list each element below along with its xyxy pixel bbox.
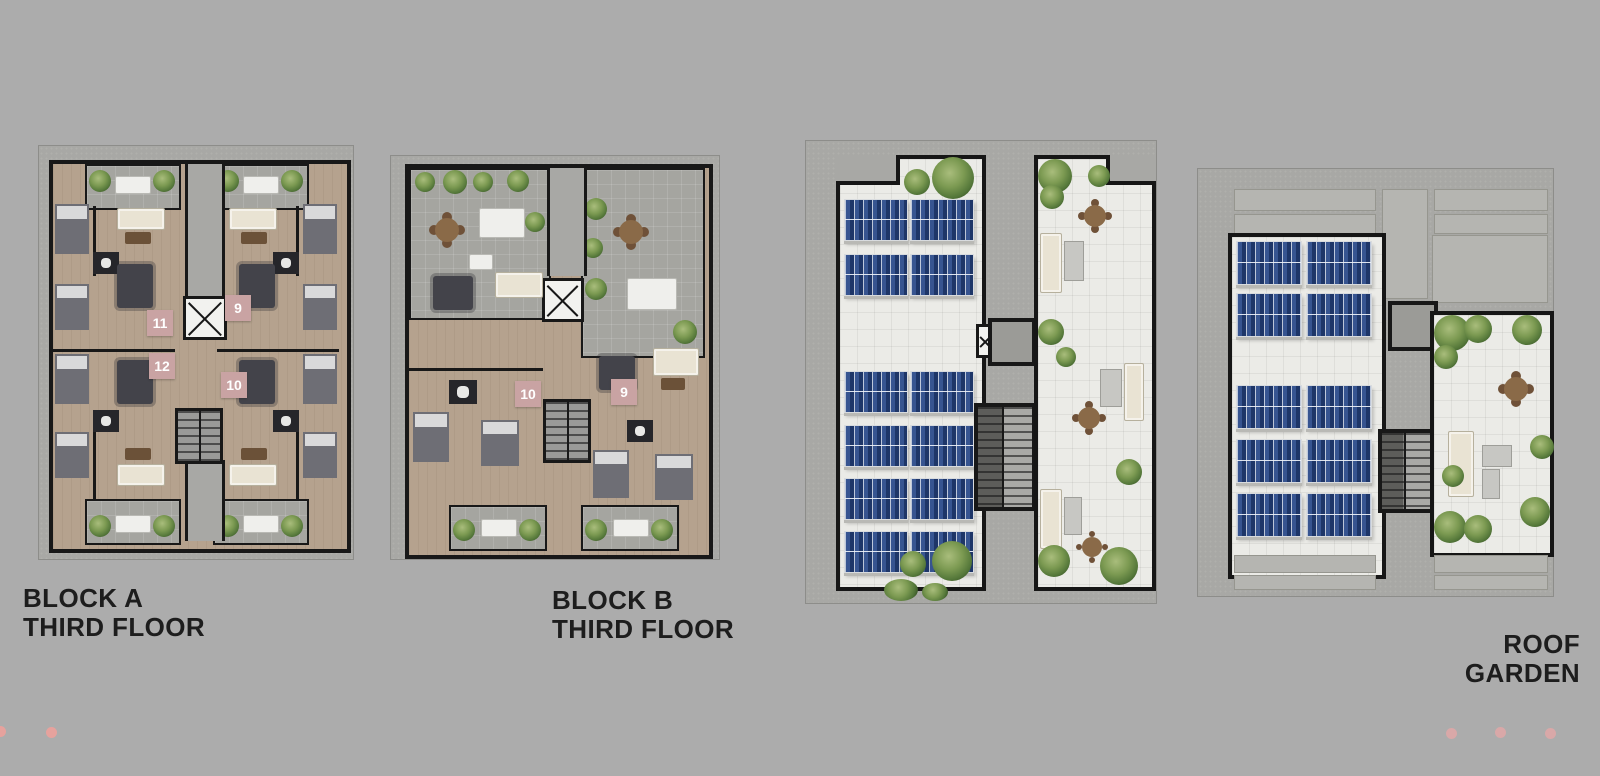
block-a-building: [49, 160, 351, 553]
unit-number-badge: 10: [515, 381, 541, 407]
plant: [1056, 347, 1076, 367]
plant: [507, 170, 529, 192]
outdoor-sofa: [627, 278, 677, 310]
plant: [473, 172, 493, 192]
outdoor-sofa: [243, 176, 279, 194]
bed: [303, 432, 337, 478]
plant: [1530, 435, 1554, 459]
outdoor-table: [1064, 497, 1082, 535]
plant: [519, 519, 541, 541]
stairs: [543, 399, 591, 463]
plant: [443, 170, 467, 194]
solar-panel-array: [1306, 241, 1372, 285]
elevator: [542, 278, 584, 322]
plant: [1512, 315, 1542, 345]
dining-table: [117, 360, 153, 404]
bed: [481, 420, 519, 466]
plant: [651, 519, 673, 541]
block-b-building: [405, 164, 713, 559]
solar-panel-array: [844, 254, 908, 296]
bathroom: [273, 410, 299, 432]
solar-panel-array: [910, 425, 974, 467]
outdoor-sofa: [115, 176, 151, 194]
plant: [89, 170, 111, 192]
block-b-title: BLOCK B THIRD FLOOR: [552, 586, 734, 644]
plant: [415, 172, 435, 192]
roof-band: [1434, 214, 1548, 234]
block-a-title: BLOCK A THIRD FLOOR: [23, 584, 205, 642]
slide-canvas: 11 12 9 10: [0, 0, 1600, 776]
block-a-title-line2: THIRD FLOOR: [23, 613, 205, 642]
unit-number-badge: 10: [221, 372, 247, 398]
solar-panel-array: [844, 371, 908, 413]
dining-table: [117, 264, 153, 308]
roof-garden-terrace: [1430, 311, 1554, 557]
block-b-title-line1: BLOCK B: [552, 586, 734, 615]
plant: [1088, 165, 1110, 187]
plant: [904, 169, 930, 195]
outdoor-seat: [469, 254, 493, 270]
roof-band: [1234, 575, 1376, 590]
plant: [1520, 497, 1550, 527]
plant: [900, 551, 926, 577]
solar-panel-array: [910, 199, 974, 241]
plant: [153, 515, 175, 537]
roof-band: [1434, 189, 1548, 211]
roof-band: [1234, 214, 1376, 234]
unit-number-badge: 9: [611, 379, 637, 405]
balcony: [85, 164, 181, 210]
bed: [655, 454, 693, 500]
roof-band: [1434, 575, 1548, 590]
carousel-dot[interactable]: [1495, 727, 1506, 738]
sofa: [653, 348, 699, 376]
roof-notch: [1106, 155, 1156, 185]
roof-plan-left: [805, 140, 1157, 604]
outdoor-dining-set: [1084, 205, 1106, 227]
solar-panel-array: [1236, 293, 1302, 337]
wall: [409, 368, 543, 371]
solar-panel-array: [844, 478, 908, 520]
solar-panel-array: [844, 531, 908, 573]
solar-panel-array: [1306, 493, 1372, 537]
dining-table: [433, 276, 473, 310]
plant: [1100, 547, 1138, 585]
plant: [1038, 545, 1070, 577]
light-well: [185, 460, 225, 541]
coffee-table: [241, 448, 267, 460]
coffee-table: [125, 448, 151, 460]
roof-terrace: [1034, 155, 1156, 591]
plant: [281, 515, 303, 537]
plant: [1442, 465, 1464, 487]
roof-garden-title-line1: ROOF: [1465, 630, 1580, 659]
outdoor-dining-set: [1082, 537, 1102, 557]
balcony: [213, 164, 309, 210]
block-a-floorplan: 11 12 9 10: [38, 145, 354, 560]
bathroom: [627, 420, 653, 442]
solar-panel-array: [1236, 439, 1302, 483]
bed: [303, 354, 337, 404]
block-a-title-line1: BLOCK A: [23, 584, 205, 613]
solar-panel-array: [1236, 493, 1302, 537]
stairs: [974, 403, 1036, 511]
light-well: [185, 164, 225, 296]
plant: [922, 583, 948, 601]
roof-garden-title-line2: GARDEN: [1465, 659, 1580, 688]
wall: [296, 429, 299, 499]
carousel-dot[interactable]: [0, 726, 6, 737]
bed: [55, 354, 89, 404]
solar-roof: [836, 155, 986, 591]
balcony: [213, 499, 309, 545]
carousel-dot[interactable]: [1545, 728, 1556, 739]
sofa: [117, 208, 165, 230]
plant: [525, 212, 545, 232]
solar-panel-array: [1306, 439, 1372, 483]
outdoor-sofa: [1448, 431, 1474, 497]
solar-panel-array: [1306, 385, 1372, 429]
plant: [1464, 515, 1492, 543]
stairs: [1378, 429, 1434, 513]
roof-band: [1234, 555, 1376, 573]
solar-panel-array: [1306, 293, 1372, 337]
plant: [1038, 319, 1064, 345]
outdoor-sofa: [1124, 363, 1144, 421]
bathroom: [273, 252, 299, 274]
outdoor-table: [1482, 469, 1500, 499]
balcony: [581, 505, 679, 551]
plant: [153, 170, 175, 192]
outdoor-sofa: [613, 519, 649, 537]
roof-band: [1234, 189, 1376, 211]
plant: [932, 157, 974, 199]
plant: [673, 320, 697, 344]
plant: [1040, 185, 1064, 209]
sofa: [229, 208, 277, 230]
outdoor-dining-set: [1078, 407, 1100, 429]
light-well: [547, 168, 587, 276]
elevator: [988, 318, 1036, 366]
plant: [585, 278, 607, 300]
wall: [93, 429, 96, 499]
sofa: [117, 464, 165, 486]
sofa: [229, 464, 277, 486]
outdoor-table: [1100, 369, 1122, 407]
plant: [585, 198, 607, 220]
plant: [89, 515, 111, 537]
terrace: [581, 168, 705, 358]
solar-panel-array: [910, 254, 974, 296]
unit-number-badge: 11: [147, 310, 173, 336]
outdoor-sofa: [243, 515, 279, 533]
outdoor-sofa: [1040, 489, 1062, 549]
bed: [55, 204, 89, 254]
outdoor-sofa: [481, 519, 517, 537]
roof-garden-plan: [1197, 168, 1554, 597]
bed: [55, 432, 89, 478]
bed: [303, 284, 337, 330]
solar-panel-array: [1236, 385, 1302, 429]
coffee-table: [241, 232, 267, 244]
outdoor-sofa: [1040, 233, 1062, 293]
plant: [932, 541, 972, 581]
balcony: [449, 505, 547, 551]
plant: [884, 579, 918, 601]
plant: [1434, 511, 1466, 543]
solar-panel-array: [1236, 241, 1302, 285]
wall: [53, 349, 175, 352]
unit-number-badge: 12: [149, 353, 175, 379]
plant: [1464, 315, 1492, 343]
wall: [217, 349, 339, 352]
roof-notch: [836, 155, 900, 185]
bed: [593, 450, 629, 498]
plant: [453, 519, 475, 541]
block-b-title-line2: THIRD FLOOR: [552, 615, 734, 644]
solar-panel-array: [910, 478, 974, 520]
outdoor-table: [1482, 445, 1512, 467]
balcony: [85, 499, 181, 545]
outdoor-sofa: [479, 208, 525, 238]
bed: [55, 284, 89, 330]
bathroom: [449, 380, 477, 404]
outdoor-dining-set: [619, 220, 643, 244]
coffee-table: [125, 232, 151, 244]
solar-panel-array: [844, 425, 908, 467]
roof-band: [1434, 555, 1548, 573]
outdoor-dining-set: [1504, 377, 1528, 401]
plant: [1434, 345, 1458, 369]
carousel-dot[interactable]: [1446, 728, 1457, 739]
sofa: [495, 272, 543, 298]
stairs: [175, 408, 223, 464]
solar-panel-array: [910, 371, 974, 413]
block-b-floorplan: 10 9: [390, 155, 720, 560]
unit-number-badge: 9: [225, 295, 251, 321]
bed: [413, 412, 449, 462]
bed: [303, 204, 337, 254]
plant: [585, 519, 607, 541]
bathroom: [93, 252, 119, 274]
bathroom: [93, 410, 119, 432]
outdoor-table: [1064, 241, 1084, 281]
elevator: [183, 296, 227, 340]
roof-garden-title: ROOF GARDEN: [1465, 630, 1580, 688]
solar-panel-array: [844, 199, 908, 241]
plant: [281, 170, 303, 192]
carousel-dot[interactable]: [46, 727, 57, 738]
outdoor-dining-set: [435, 218, 459, 242]
coffee-table: [661, 378, 685, 390]
outdoor-sofa: [115, 515, 151, 533]
solar-roof: [1228, 233, 1386, 579]
plant: [1116, 459, 1142, 485]
roof-band: [1382, 189, 1428, 299]
roof-band: [1432, 235, 1548, 303]
